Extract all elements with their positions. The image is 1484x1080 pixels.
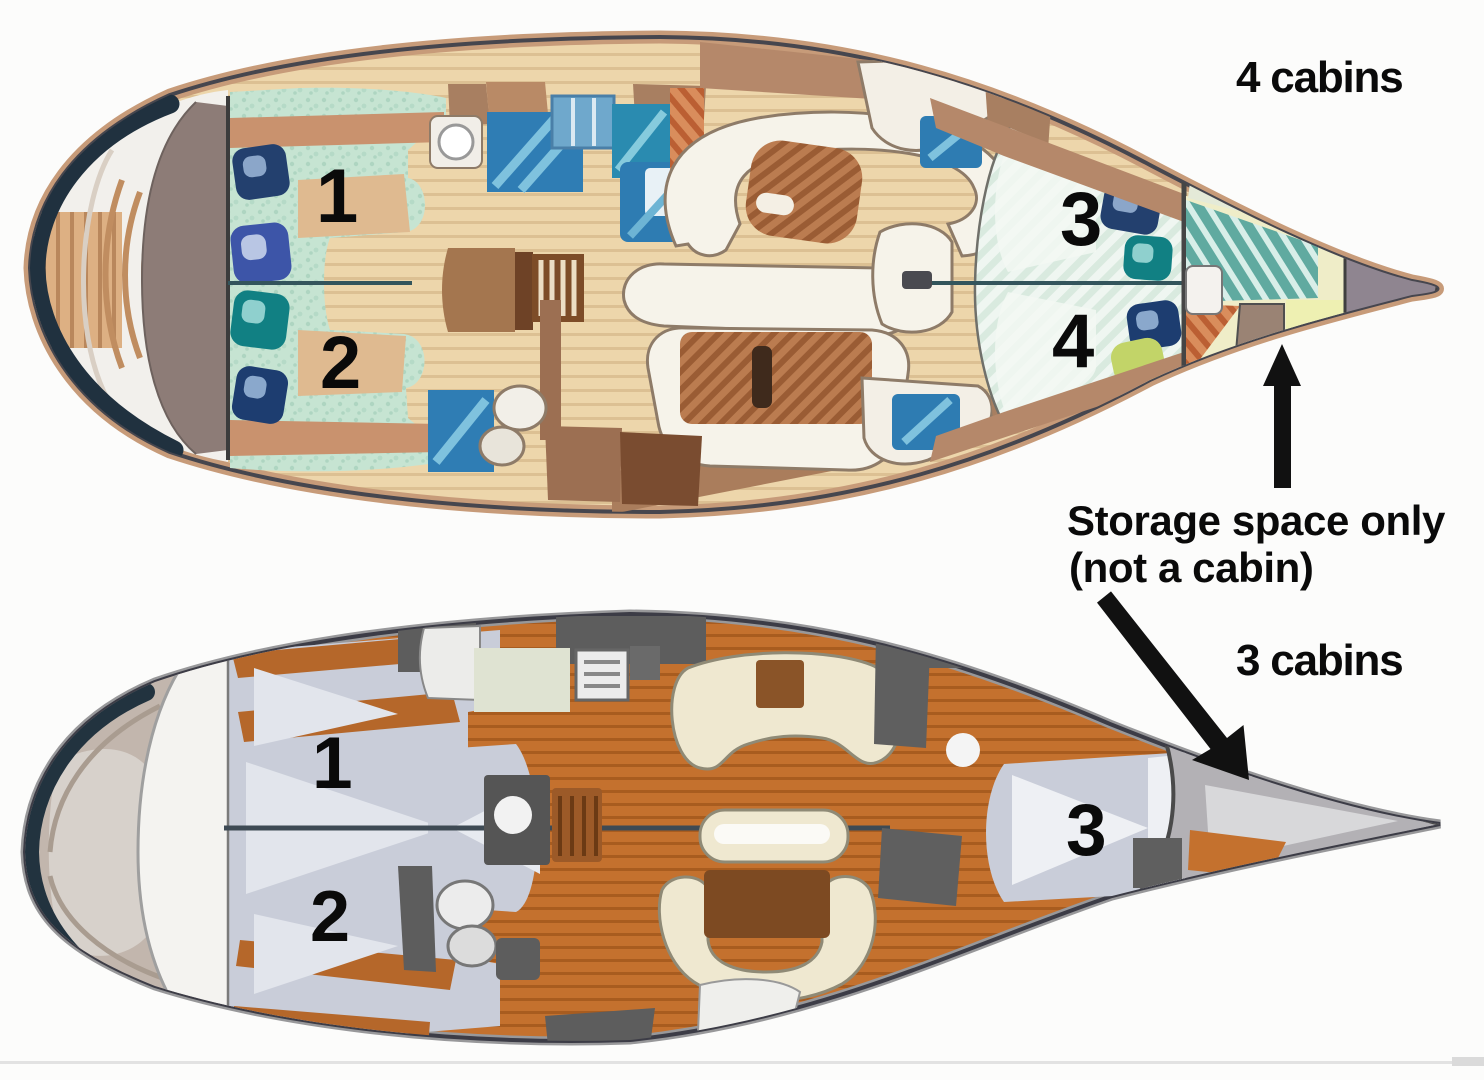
svg-text:1: 1 (312, 723, 353, 804)
svg-text:2: 2 (320, 321, 361, 404)
svg-text:3: 3 (1066, 790, 1107, 871)
svg-text:3 cabins: 3 cabins (1236, 636, 1403, 685)
svg-text:3: 3 (1060, 177, 1102, 262)
svg-text:2: 2 (310, 877, 350, 957)
svg-text:Storage space only: Storage space only (1067, 497, 1446, 544)
svg-text:4: 4 (1052, 299, 1094, 384)
svg-text:4 cabins: 4 cabins (1236, 53, 1403, 102)
svg-text:1: 1 (316, 154, 358, 239)
svg-text:(not a cabin): (not a cabin) (1069, 544, 1313, 591)
